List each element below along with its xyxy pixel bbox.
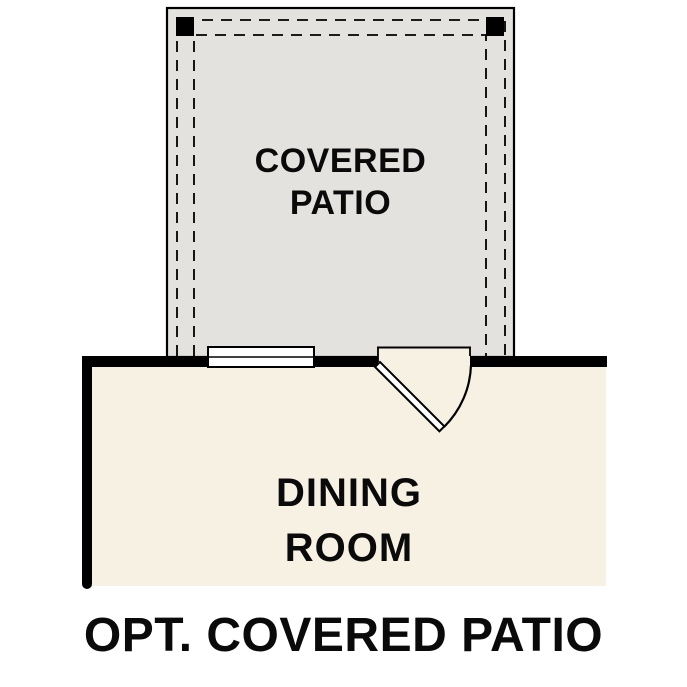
plan-caption: OPT. COVERED PATIO bbox=[0, 610, 687, 662]
floorplan-drawing bbox=[0, 0, 687, 687]
door-opening bbox=[378, 348, 470, 367]
patio-label: COVERED PATIO bbox=[167, 140, 514, 224]
wall-left bbox=[82, 356, 92, 589]
wall-top-right-segment bbox=[470, 356, 607, 367]
floorplan: COVERED PATIO DINING ROOM OPT. COVERED P… bbox=[0, 0, 687, 687]
patio-post-right bbox=[486, 17, 504, 36]
dining-room-label: DINING ROOM bbox=[92, 466, 606, 576]
patio-post-left bbox=[176, 17, 194, 36]
